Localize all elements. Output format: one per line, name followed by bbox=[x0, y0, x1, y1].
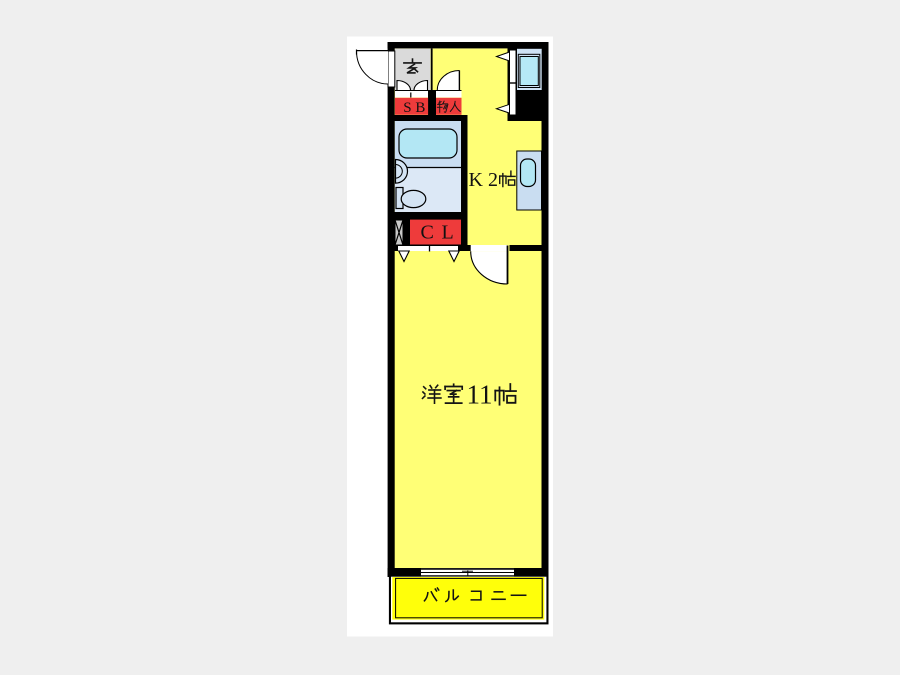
svg-text:K 2: K 2 bbox=[469, 169, 498, 191]
svg-text:11: 11 bbox=[467, 380, 493, 410]
svg-text:CL: CL bbox=[421, 221, 462, 243]
svg-text:S B: S B bbox=[403, 100, 425, 116]
